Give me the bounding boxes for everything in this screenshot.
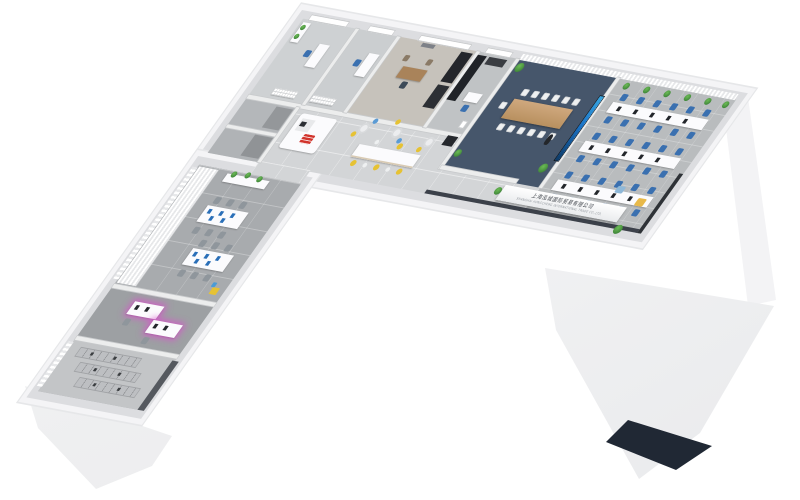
office-floorplan-render: 上海泓城国际贸易有限公司 SHANGHAI HONGCHENG INTERNAT… (0, 0, 800, 500)
